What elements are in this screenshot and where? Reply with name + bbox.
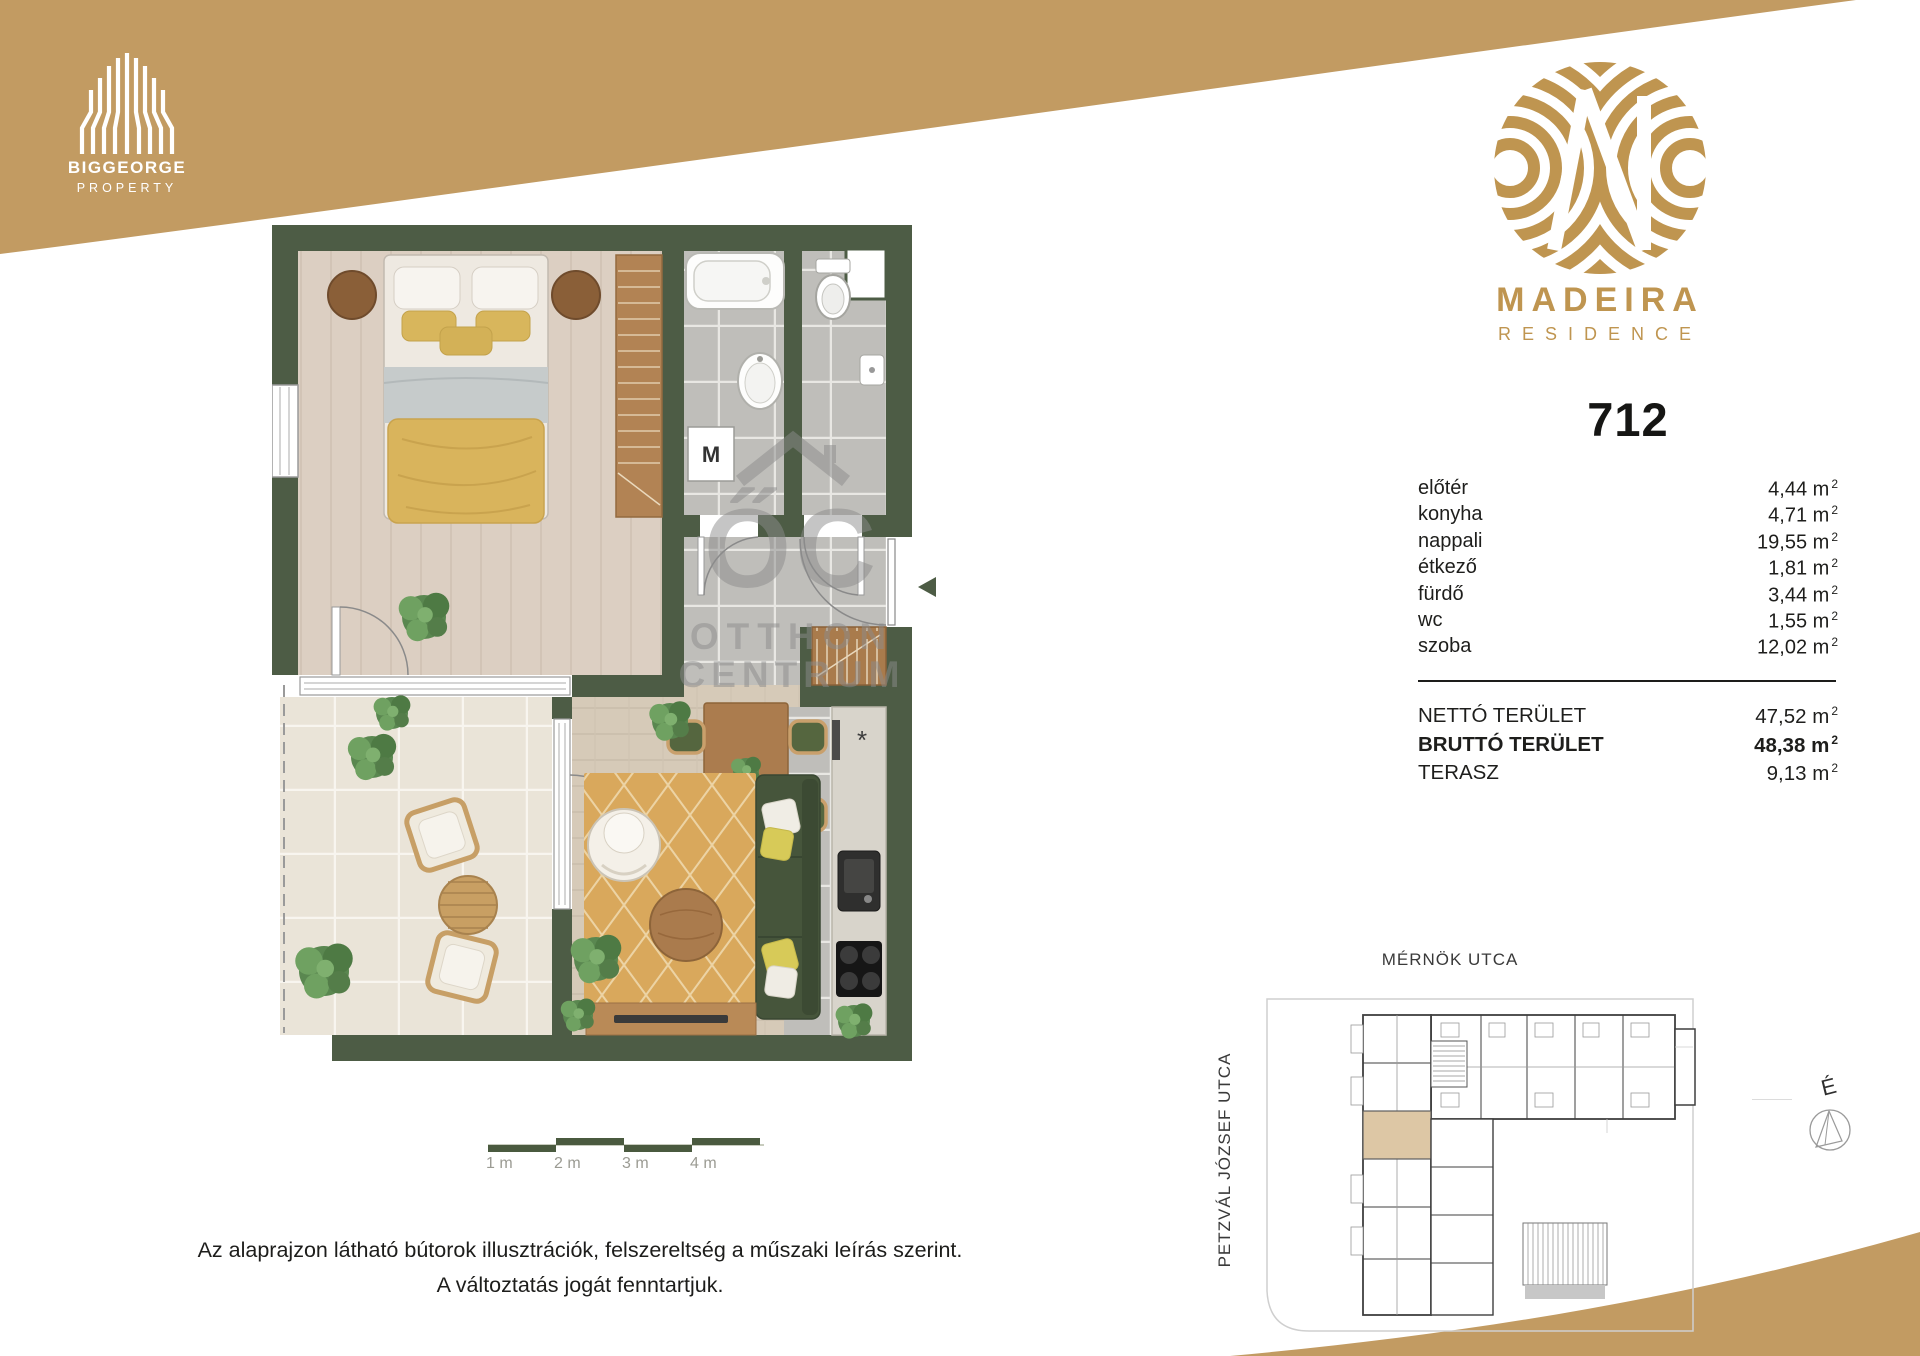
room-value: 4,71 m2 — [1768, 503, 1838, 529]
disclaimer-line1: Az alaprajzon látható bútorok illusztrác… — [60, 1233, 1100, 1268]
brochure-page: BIGGEORGE PROPERTY — [0, 0, 1920, 1356]
toilet — [816, 259, 850, 319]
biggeorge-wordmark: BIGGEORGE — [32, 158, 222, 178]
double-bed — [384, 255, 548, 523]
madeira-logo-icon — [1492, 60, 1708, 276]
terrace-table — [439, 876, 497, 934]
madeira-wordmark: MADEIRA — [1440, 281, 1760, 320]
sofa — [756, 775, 820, 1019]
bathtub — [686, 253, 784, 309]
street-label-mernok-utca: MÉRNÖK UTCA — [1290, 950, 1610, 970]
total-label: TERASZ — [1418, 761, 1499, 790]
scale-label-3m: 3 m — [622, 1155, 682, 1173]
coffee-table — [650, 889, 722, 961]
room-value: 1,81 m2 — [1768, 556, 1838, 582]
kitchen-symbol: * — [857, 725, 867, 755]
room-value: 4,44 m2 — [1768, 477, 1838, 503]
area-row: fürdő 3,44 m2 — [1418, 583, 1838, 609]
bedroom-window — [272, 385, 298, 477]
highlighted-unit-712 — [1363, 1111, 1431, 1159]
total-row-terasz: TERASZ 9,13 m2 — [1418, 761, 1838, 790]
compass-needle — [1816, 1111, 1842, 1147]
site-slab — [1525, 1285, 1605, 1299]
total-row-brutto: BRUTTÓ TERÜLET 48,38 m2 — [1418, 733, 1838, 762]
table-divider-line — [1418, 680, 1836, 682]
street-label-petzval-jozsef-utca: PETZVÁL JÓZSEF UTCA — [1215, 1000, 1235, 1320]
north-label: É — [1819, 1073, 1839, 1101]
terrace-armchair — [426, 931, 499, 1004]
entry-door-leaf — [888, 539, 895, 625]
unit-number: 712 — [1418, 392, 1838, 447]
total-value: 9,13 m2 — [1767, 761, 1838, 790]
washer-label: M — [702, 442, 720, 467]
living-terrace-door — [554, 719, 570, 909]
total-row-netto: NETTÓ TERÜLET 47,52 m2 — [1418, 704, 1838, 733]
total-label: BRUTTÓ TERÜLET — [1418, 733, 1604, 762]
room-label: konyha — [1418, 503, 1483, 529]
bathroom-sink — [738, 353, 782, 409]
kitchen-sink — [838, 851, 880, 911]
scale-label-2m: 2 m — [554, 1155, 614, 1173]
floor-plan: M — [272, 215, 952, 1065]
room-label: előtér — [1418, 477, 1468, 503]
cooktop — [836, 941, 882, 997]
room-value: 3,44 m2 — [1768, 583, 1838, 609]
bedroom-door-leaf — [332, 607, 340, 675]
area-row: nappali 19,55 m2 — [1418, 530, 1838, 556]
madeira-sub-wordmark: RESIDENCE — [1440, 324, 1760, 345]
total-value: 48,38 m2 — [1754, 733, 1838, 762]
wc-sink — [860, 355, 884, 385]
area-row: wc 1,55 m2 — [1418, 609, 1838, 635]
room-label: szoba — [1418, 635, 1471, 661]
room-label: nappali — [1418, 530, 1483, 556]
kitchen-fixtures: * — [832, 707, 886, 1035]
room-value: 19,55 m2 — [1757, 530, 1838, 556]
scale-label-1m: 1 m — [486, 1155, 546, 1173]
shaft-niche — [846, 249, 886, 299]
disclaimer: Az alaprajzon látható bútorok illusztrác… — [60, 1233, 1100, 1303]
room-label: étkező — [1418, 556, 1477, 582]
tv-console — [586, 1003, 756, 1035]
entrance-arrow-icon — [918, 577, 936, 597]
area-row: étkező 1,81 m2 — [1418, 556, 1838, 582]
wardrobe — [616, 255, 662, 517]
tv — [614, 1015, 728, 1023]
scale-label-4m: 4 m — [690, 1155, 750, 1173]
area-row: előtér 4,44 m2 — [1418, 477, 1838, 503]
north-compass: É — [1796, 1068, 1866, 1168]
nightstand — [328, 271, 376, 319]
site-boundary-tie-line — [1752, 1099, 1792, 1100]
room-area-list: előtér 4,44 m2 konyha 4,71 m2 nappali 19… — [1418, 477, 1838, 662]
biggeorge-building-icon — [52, 50, 202, 160]
room-label: fürdő — [1418, 583, 1464, 609]
room-value: 1,55 m2 — [1768, 609, 1838, 635]
washing-machine: M — [688, 427, 734, 481]
room-label: wc — [1418, 609, 1442, 635]
area-row: szoba 12,02 m2 — [1418, 635, 1838, 661]
armchair — [588, 809, 660, 881]
watermark-initials: ŐC — [704, 486, 880, 611]
area-row: konyha 4,71 m2 — [1418, 503, 1838, 529]
room-value: 12,02 m2 — [1757, 635, 1838, 661]
biggeorge-sub-wordmark: PROPERTY — [32, 181, 222, 195]
watermark-line1: OTTHON — [690, 616, 894, 657]
kitchen-appliance — [832, 720, 840, 760]
site-plan — [1245, 985, 1715, 1345]
terrace-sliding-door — [300, 677, 570, 695]
disclaimer-line2: A változtatás jogát fenntartjuk. — [60, 1268, 1100, 1303]
total-label: NETTÓ TERÜLET — [1418, 704, 1586, 733]
totals-list: NETTÓ TERÜLET 47,52 m2 BRUTTÓ TERÜLET 48… — [1418, 704, 1838, 790]
watermark-line2: CENTRUM — [679, 654, 906, 695]
total-value: 47,52 m2 — [1755, 704, 1838, 733]
nightstand — [552, 271, 600, 319]
